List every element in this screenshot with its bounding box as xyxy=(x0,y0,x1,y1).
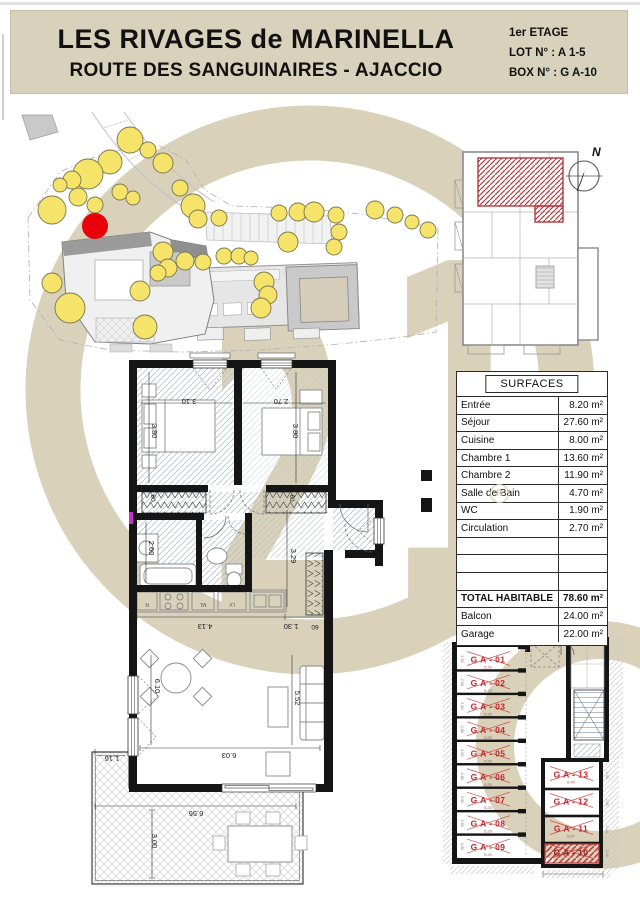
stall-divider xyxy=(455,763,522,765)
garage-plan: G A - 015.202.50G A - 025.202.50G A - 03… xyxy=(443,628,623,878)
stall-dim-label: 5.20 xyxy=(484,782,493,787)
stall-dim-label: 5.20 xyxy=(484,829,493,834)
stall-dim-label: 2.50 xyxy=(605,799,609,806)
surface-row xyxy=(457,555,607,573)
surface-row: Entrée8.20 m² xyxy=(457,397,607,414)
garage-stall-label: G A - 02 xyxy=(471,678,506,688)
tree-icon xyxy=(244,251,258,265)
surface-area-value xyxy=(559,555,608,573)
surface-area-value: 78.60 m² xyxy=(559,590,608,608)
tree-icon xyxy=(328,207,344,223)
garage-stall-label: G A - 12 xyxy=(554,797,589,807)
stall-dim-label: 2.50 xyxy=(460,726,464,733)
stall-dim-label: 2.50 xyxy=(605,826,609,833)
dimension-label: 1.30 xyxy=(284,622,299,631)
surface-area-value: 1.90 m² xyxy=(559,502,608,520)
project-title: LES RIVAGES de MARINELLA ROUTE DES SANGU… xyxy=(11,11,501,95)
surface-room-label xyxy=(457,537,559,555)
garage-stall-label: G A - 13 xyxy=(554,770,589,780)
dimension-label: 1.16 xyxy=(105,754,120,763)
tree-icon xyxy=(211,210,227,226)
surface-area-value: 24.00 m² xyxy=(559,608,608,626)
surface-room-label: Balcon xyxy=(457,608,559,626)
dimension-label: 5.52 xyxy=(293,691,302,706)
garage-stall-label: G A - 05 xyxy=(471,748,506,758)
tree-icon xyxy=(117,127,143,153)
title-block: LES RIVAGES de MARINELLA ROUTE DES SANGU… xyxy=(10,10,628,94)
stall-divider xyxy=(455,740,522,742)
dimension-label: 6.10 xyxy=(153,679,162,694)
stall-dim-label: 2.50 xyxy=(460,796,464,803)
surface-row: Salle de Bain4.70 m² xyxy=(457,484,607,502)
tree-icon xyxy=(271,205,287,221)
surface-room-label xyxy=(457,572,559,590)
surface-row: Garage22.00 m² xyxy=(457,625,607,642)
surface-row xyxy=(457,537,607,555)
lot-number: LOT N° : A 1-5 xyxy=(509,47,629,59)
garage-stall-label: G A - 07 xyxy=(471,795,506,805)
registered-trademark-icon: R xyxy=(490,484,509,503)
tree-icon xyxy=(150,265,166,281)
tree-icon xyxy=(420,222,436,238)
surfaces-table-header: SURFACES xyxy=(457,372,607,397)
wc-basin xyxy=(207,548,227,564)
appliance-label: R xyxy=(145,601,149,607)
dimension-label: 60 xyxy=(288,494,295,502)
tree-icon xyxy=(126,191,140,205)
stall-dim-label: 2.50 xyxy=(460,749,464,756)
surface-area-value: 4.70 m² xyxy=(559,484,608,502)
stall-dim-label: 6.40 xyxy=(567,780,576,785)
dimension-label: 2.60 xyxy=(147,541,156,556)
tree-icon xyxy=(140,142,156,158)
garage-stall-label: G A - 09 xyxy=(471,842,506,852)
garage-stall-label: G A - 01 xyxy=(471,655,506,665)
brochure-page: 2 1 xyxy=(0,0,640,905)
tree-icon xyxy=(69,188,87,206)
surface-row: Circulation2.70 m² xyxy=(457,520,607,538)
tree-icon xyxy=(133,315,157,339)
surface-area-value: 22.00 m² xyxy=(559,625,608,642)
surface-room-label: Chambre 2 xyxy=(457,467,559,485)
stall-dim-label: 2.50 xyxy=(460,819,464,826)
apartment-floor-plan: 3.102.703.803.8060602.603.294.131.30606.… xyxy=(92,353,432,884)
surface-area-value: 11.90 m² xyxy=(559,467,608,485)
surface-area-value: 8.20 m² xyxy=(559,397,608,414)
garage-stall-label: G A - 06 xyxy=(471,772,506,782)
outdoor-table xyxy=(228,826,292,862)
ramp xyxy=(531,643,559,667)
box-number: BOX N° : G A-10 xyxy=(509,67,629,79)
stall-divider xyxy=(455,810,522,812)
lot-info: 1er ETAGE LOT N° : A 1-5 BOX N° : G A-10 xyxy=(509,11,629,95)
surface-row: Chambre 113.60 m² xyxy=(457,449,607,467)
surface-area-value: 13.60 m² xyxy=(559,449,608,467)
tree-icon xyxy=(326,239,342,255)
stall-divider xyxy=(455,693,522,695)
dimension-label: 6.03 xyxy=(222,751,237,760)
surface-room-label: Circulation xyxy=(457,520,559,538)
tree-icon xyxy=(251,298,271,318)
site-plan xyxy=(22,112,438,352)
tree-icon xyxy=(153,153,173,173)
garage-stall-label: G A - 10 xyxy=(554,848,589,858)
stall-divider xyxy=(455,669,522,671)
residence-name: LES RIVAGES de MARINELLA xyxy=(57,24,454,55)
stall-dim-label: 2.50 xyxy=(460,679,464,686)
dimension-label: 3.29 xyxy=(289,549,298,564)
tree-icon xyxy=(189,210,207,228)
stall-dim-label: 5.20 xyxy=(484,711,493,716)
tree-icon xyxy=(387,207,403,223)
radiator xyxy=(129,512,133,524)
stall-divider xyxy=(455,716,522,718)
stall-divider xyxy=(455,787,522,789)
tree-icon xyxy=(366,201,384,219)
garage-stall-label: G A - 08 xyxy=(471,819,506,829)
garage-stall-label: G A - 04 xyxy=(471,725,506,735)
dimension-label: 6.56 xyxy=(189,809,204,818)
surfaces-title: SURFACES xyxy=(485,375,578,393)
stall-dim-label: 5.20 xyxy=(484,852,493,857)
stall-dim-label: 5.20 xyxy=(484,805,493,810)
surface-room-label: Séjour xyxy=(457,414,559,432)
stall-dim-label: 6.87 xyxy=(567,834,576,839)
surface-room-label: Chambre 1 xyxy=(457,449,559,467)
stall-dim-label: 2.50 xyxy=(605,772,609,779)
tree-icon xyxy=(304,202,324,222)
surface-room-label: Cuisine xyxy=(457,432,559,450)
tree-icon xyxy=(278,232,298,252)
stall-dim-label: 5.20 xyxy=(484,688,493,693)
surfaces-table: SURFACES Entrée8.20 m²Séjour27.60 m²Cuis… xyxy=(456,371,608,646)
dimension-label: 3.10 xyxy=(182,397,197,406)
surface-row: TOTAL HABITABLE78.60 m² xyxy=(457,590,607,608)
north-label: N xyxy=(592,145,601,159)
dimension-label: 4.13 xyxy=(198,622,213,631)
tree-icon xyxy=(38,196,66,224)
surface-row: WC1.90 m² xyxy=(457,502,607,520)
dimension-label: 3.80 xyxy=(291,424,300,439)
surface-room-label: Entrée xyxy=(457,397,559,414)
floor-label: 1er ETAGE xyxy=(509,27,629,39)
surface-row: Balcon24.00 m² xyxy=(457,608,607,626)
stall-dim-label: 5.20 xyxy=(484,735,493,740)
stall-dim-label: 2.50 xyxy=(460,655,464,662)
dimension-label: 2.70 xyxy=(274,397,289,406)
appliance-label: LV xyxy=(228,601,234,607)
stall-dim-label: 5.20 xyxy=(484,665,493,670)
tree-icon xyxy=(195,254,211,270)
garage-stall-label: G A - 03 xyxy=(471,701,506,711)
residence-address: ROUTE DES SANGUINAIRES - AJACCIO xyxy=(69,60,442,82)
stall-divider xyxy=(543,788,601,791)
surface-row: Chambre 211.90 m² xyxy=(457,467,607,485)
garage-stall-label: G A - 11 xyxy=(554,824,588,834)
tree-icon xyxy=(55,293,85,323)
stall-divider xyxy=(455,833,522,835)
stall-dim-label: 5.20 xyxy=(484,758,493,763)
dimension-label: 3.80 xyxy=(150,424,159,439)
surface-area-value: 2.70 m² xyxy=(559,520,608,538)
stall-dim-label: 2.50 xyxy=(460,702,464,709)
stall-divider xyxy=(543,815,601,818)
tree-icon xyxy=(172,180,188,196)
appliance-label: ML xyxy=(199,601,206,607)
tree-icon xyxy=(331,224,347,240)
stall-dim-label: 2.50 xyxy=(460,773,464,780)
dimension-label: 3.00 xyxy=(150,834,159,849)
surface-room-label: Garage xyxy=(457,625,559,642)
surface-room-label xyxy=(457,555,559,573)
dining-table xyxy=(161,663,191,693)
tree-icon xyxy=(130,281,150,301)
location-marker xyxy=(82,213,108,239)
surface-row: Séjour27.60 m² xyxy=(457,414,607,432)
stall-dim-label: 2.50 xyxy=(460,843,464,850)
tv-unit xyxy=(266,752,290,776)
tree-icon xyxy=(53,178,67,192)
tree-icon xyxy=(176,252,194,270)
surface-area-value: 8.00 m² xyxy=(559,432,608,450)
tree-icon xyxy=(216,248,232,264)
dimension-label: 60 xyxy=(149,494,156,502)
surface-row xyxy=(457,572,607,590)
surface-room-label: WC xyxy=(457,502,559,520)
tree-icon xyxy=(87,197,103,213)
tree-icon xyxy=(42,273,62,293)
tree-icon xyxy=(405,215,419,229)
surface-room-label: TOTAL HABITABLE xyxy=(457,590,559,608)
dimension-label: 60 xyxy=(311,623,319,630)
coffee-table xyxy=(268,687,288,727)
surface-area-value xyxy=(559,572,608,590)
key-plan: N xyxy=(455,145,602,354)
surface-area-value: 27.60 m² xyxy=(559,414,608,432)
surface-row: Cuisine8.00 m² xyxy=(457,432,607,450)
stall-dim-label: 2.50 xyxy=(605,850,609,857)
stairwell xyxy=(571,642,604,757)
surface-area-value xyxy=(559,537,608,555)
